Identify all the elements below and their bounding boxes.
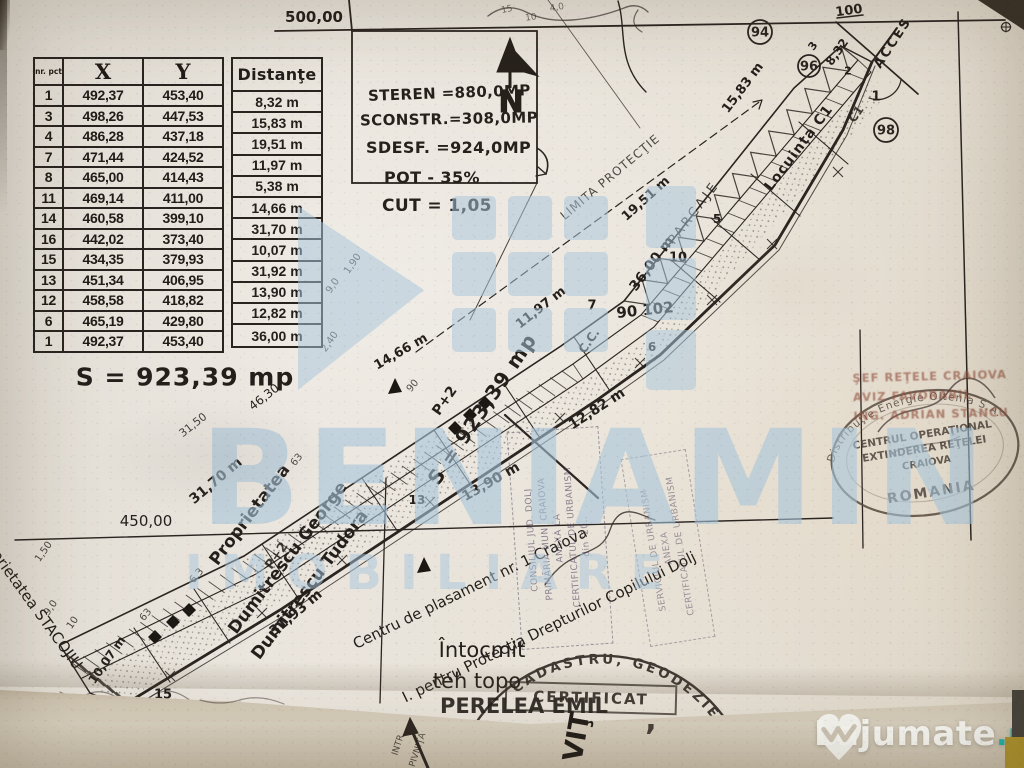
lajumate-watermark: Lajumate.ro <box>814 714 1024 754</box>
plan-label: , <box>645 703 656 738</box>
below-fold-layer: VIŢ,INTR.PIVNIŢA <box>0 0 1024 768</box>
below-fold-marks <box>0 0 1024 768</box>
photo-edge-shadow <box>0 0 7 215</box>
scanned-survey-plan-photo: 949698 N Distribuţie Energie Oltenia S.A… <box>0 0 1024 768</box>
lajumate-heart-icon <box>814 714 864 760</box>
background-object <box>1005 737 1024 768</box>
photo-edge-dark <box>1012 690 1024 742</box>
